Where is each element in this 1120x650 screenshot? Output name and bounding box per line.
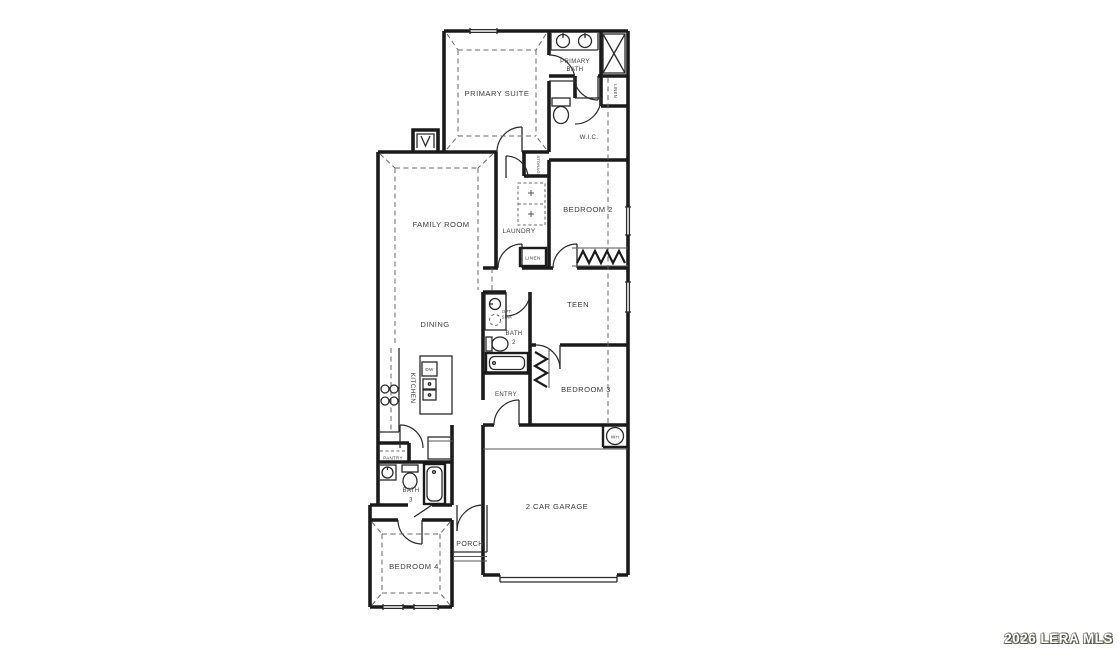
bath3-vanity [379,465,396,480]
toilet-icon-bath2 [486,337,508,351]
label-bedroom4: BEDROOM 4 [389,562,439,571]
bathtub-icon-bath3 [424,464,445,504]
label-water-heater: WH [611,435,619,440]
label-primary-suite: PRIMARY SUITE [465,89,530,98]
label-laundry: LAUNDRY [502,228,535,235]
shower-icon [603,34,625,73]
stove-icon [381,385,398,405]
label-storage: STORAGE [536,155,541,176]
label-primary-bath-1: PRIMARY [560,59,590,65]
primary-vanity [551,33,598,50]
interior-walls [378,31,628,505]
label-linen-primary: LINEN [613,84,618,98]
floor-plan: PRIMARY SUITE PRIMARY BATH W.I.C. LINEN … [0,0,1120,650]
label-entry: ENTRY [495,392,517,398]
washer-dryer-icon [518,183,545,225]
label-wic: W.I.C. [580,135,599,141]
floor-plan-drawing: PRIMARY SUITE PRIMARY BATH W.I.C. LINEN … [0,0,1120,650]
label-bath2-2: 2 [512,340,516,346]
label-garage: 2 CAR GARAGE [526,502,588,511]
label-opt-sink-2: SINK [502,315,513,320]
closet-rod-icon-bedroom2 [572,248,628,266]
label-bedroom3: BEDROOM 3 [561,385,611,394]
bathtub-icon-bath2 [486,353,528,373]
fireplace-icon [417,134,434,148]
label-pantry: PANTRY [383,456,402,461]
label-bedroom2: BEDROOM 2 [563,205,613,214]
label-bath3-1: BATH [403,488,420,494]
label-bath3-2: 3 [409,498,413,504]
garage-door [500,575,617,582]
label-linen-hall: LINEN [525,256,541,262]
label-bath2-1: BATH [506,331,523,337]
kitchen-island [420,356,452,414]
label-teen: TEEN [567,300,589,309]
toilet-icon-bath3 [402,465,418,489]
closet-rod-icon-bedroom3 [535,348,549,388]
toilet-icon-primary [552,98,570,124]
label-primary-bath-2: BATH [567,67,584,73]
exterior-walls [370,31,628,607]
label-kitchen: KITCHEN [409,373,416,404]
label-porch: PORCH [456,541,483,548]
label-dining: DINING [420,320,449,329]
label-opt-sink-1: OPT. [502,309,512,314]
watermark-text: 2026 LERA MLS [1004,631,1113,646]
refrigerator-icon [428,437,453,459]
label-family-room: FAMILY ROOM [412,220,469,229]
label-dishwasher: DW [425,367,434,372]
